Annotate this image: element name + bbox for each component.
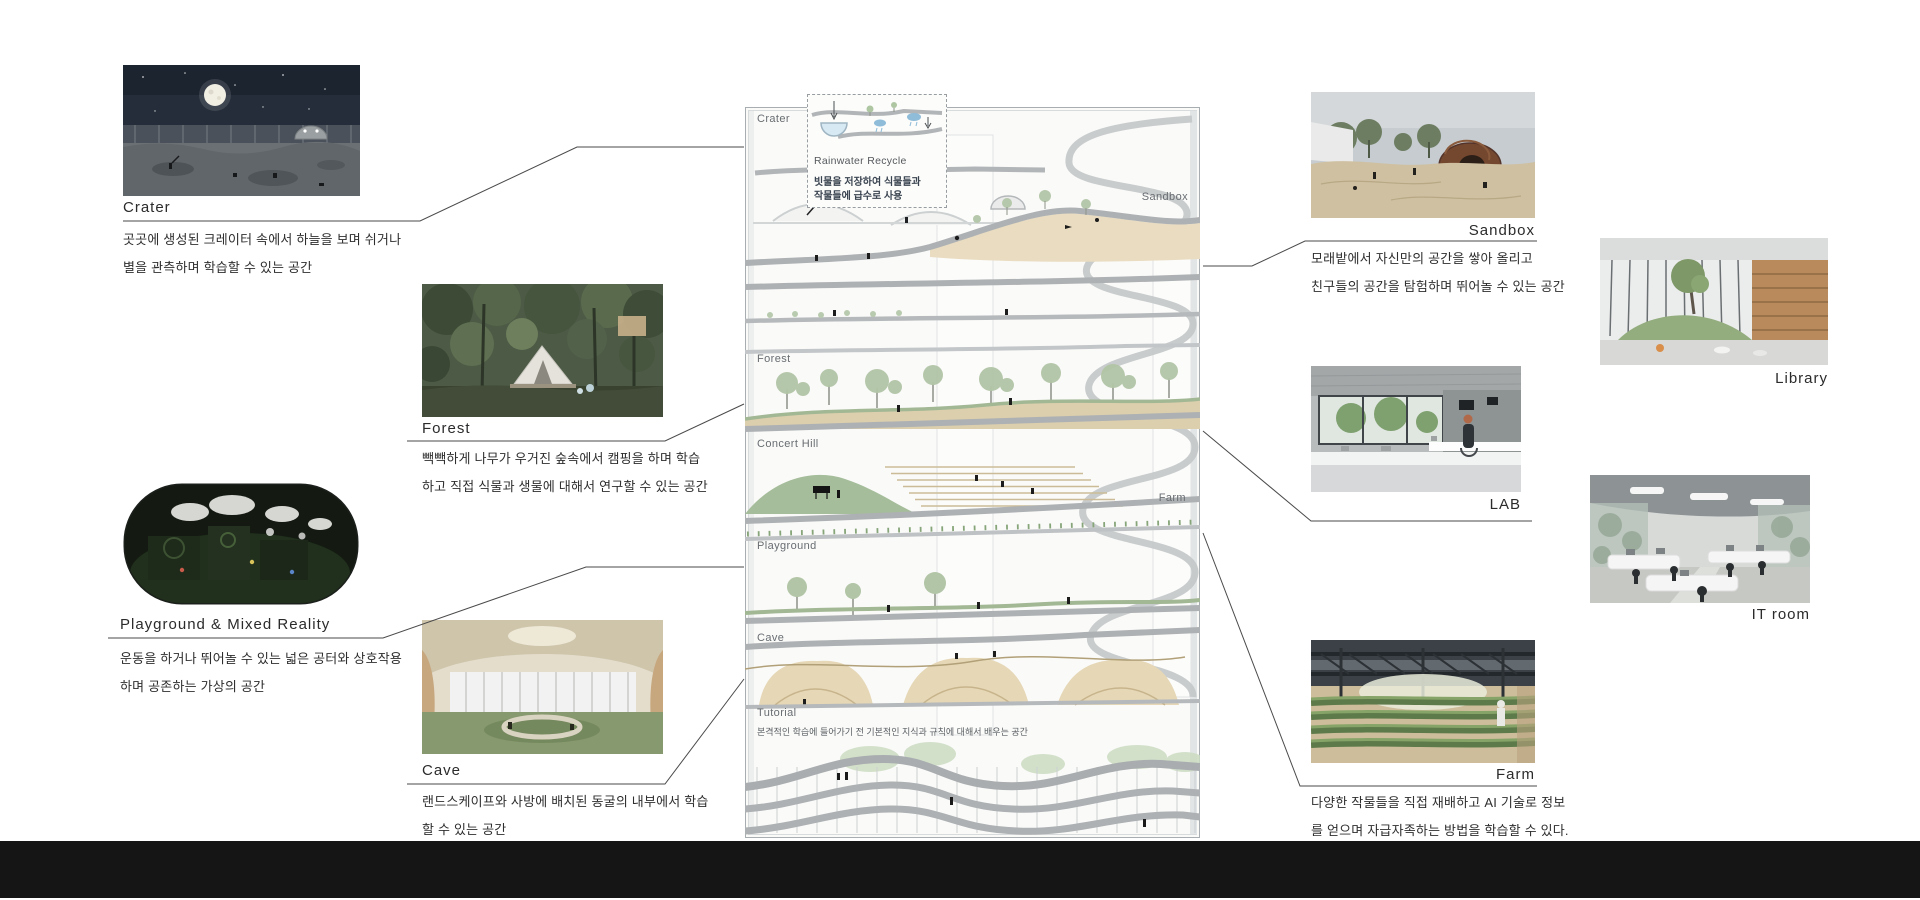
section-label-sandbox: Sandbox bbox=[1142, 191, 1188, 203]
section-label-playground: Playground bbox=[757, 540, 817, 552]
farm-desc-line2: 를 얻으며 자급자족하는 방법을 학습할 수 있다. bbox=[1311, 820, 1569, 839]
library-photo bbox=[1600, 238, 1828, 365]
forest-desc-line1: 빽빽하게 나무가 우거진 숲속에서 캠핑을 하며 학습 bbox=[422, 448, 700, 467]
playground-label: Playground & Mixed Reality bbox=[120, 616, 330, 633]
crater-desc-line2: 별을 관측하며 학습할 수 있는 공간 bbox=[123, 257, 312, 276]
sandbox-label: Sandbox bbox=[1311, 222, 1535, 239]
section-drawing-panel: Crater Sandbox Forest Concert Hill Farm … bbox=[745, 107, 1200, 838]
library-label: Library bbox=[1600, 370, 1828, 387]
sandbox-photo bbox=[1311, 92, 1535, 218]
rainwater-diagram bbox=[808, 95, 944, 153]
lab-label: LAB bbox=[1311, 496, 1521, 513]
sandbox-desc-line2: 친구들의 공간을 탐험하며 뛰어놀 수 있는 공간 bbox=[1311, 276, 1565, 295]
section-tutorial-desc: 본격적인 학습에 들어가기 전 기본적인 지식과 규칙에 대해서 배우는 공간 bbox=[757, 725, 1028, 738]
forest-label: Forest bbox=[422, 420, 471, 437]
section-label-farm: Farm bbox=[1159, 492, 1186, 504]
treehouse bbox=[618, 316, 646, 336]
presentation-board: Crater 곳곳에 생성된 크레이터 속에서 하늘을 보며 쉬거나 별을 관측… bbox=[0, 0, 1920, 900]
cave-label: Cave bbox=[422, 762, 461, 779]
forest-photo bbox=[422, 284, 663, 417]
farm-label: Farm bbox=[1311, 766, 1535, 783]
forest-desc-line2: 하고 직접 식물과 생물에 대해서 연구할 수 있는 공간 bbox=[422, 476, 708, 495]
section-label-forest: Forest bbox=[757, 353, 791, 365]
farm-photo bbox=[1311, 640, 1535, 763]
rainwater-recycle-box: Rainwater Recycle 빗물을 저장하여 식물들과 작물들에 급수로… bbox=[807, 94, 947, 208]
playground-photo bbox=[120, 478, 362, 610]
section-label-cave: Cave bbox=[757, 632, 784, 644]
rainwater-desc-line2: 작물들에 급수로 사용 bbox=[814, 187, 902, 202]
farmer-figure bbox=[1497, 708, 1505, 726]
playground-desc-line2: 하며 공존하는 가상의 공간 bbox=[120, 676, 265, 695]
section-label-concert-hill: Concert Hill bbox=[757, 438, 819, 450]
crater-desc-line1: 곳곳에 생성된 크레이터 속에서 하늘을 보며 쉬거나 bbox=[123, 229, 401, 248]
cave-desc-line2: 할 수 있는 공간 bbox=[422, 819, 506, 838]
playground-desc-line1: 운동을 하거나 뛰어놀 수 있는 넓은 공터와 상호작용 bbox=[120, 648, 402, 667]
crater-label: Crater bbox=[123, 199, 171, 216]
lab-photo bbox=[1311, 366, 1521, 492]
cave-photo bbox=[422, 620, 663, 754]
crater-photo bbox=[123, 65, 360, 196]
section-label-crater: Crater bbox=[757, 113, 790, 125]
section-label-tutorial: Tutorial bbox=[757, 707, 796, 719]
rainwater-title: Rainwater Recycle bbox=[814, 155, 907, 167]
rainwater-desc-line1: 빗물을 저장하여 식물들과 bbox=[814, 173, 921, 188]
it-room-photo bbox=[1590, 475, 1810, 603]
farm-desc-line1: 다양한 작물들을 직접 재배하고 AI 기술로 정보 bbox=[1311, 792, 1565, 811]
cave-desc-line1: 랜드스케이프와 사방에 배치된 동굴의 내부에서 학습 bbox=[422, 791, 709, 810]
person bbox=[1463, 424, 1474, 448]
footer-bar bbox=[0, 841, 1920, 898]
it-room-label: IT room bbox=[1590, 606, 1810, 623]
sandbox-desc-line1: 모래밭에서 자신만의 공간을 쌓아 올리고 bbox=[1311, 248, 1533, 267]
